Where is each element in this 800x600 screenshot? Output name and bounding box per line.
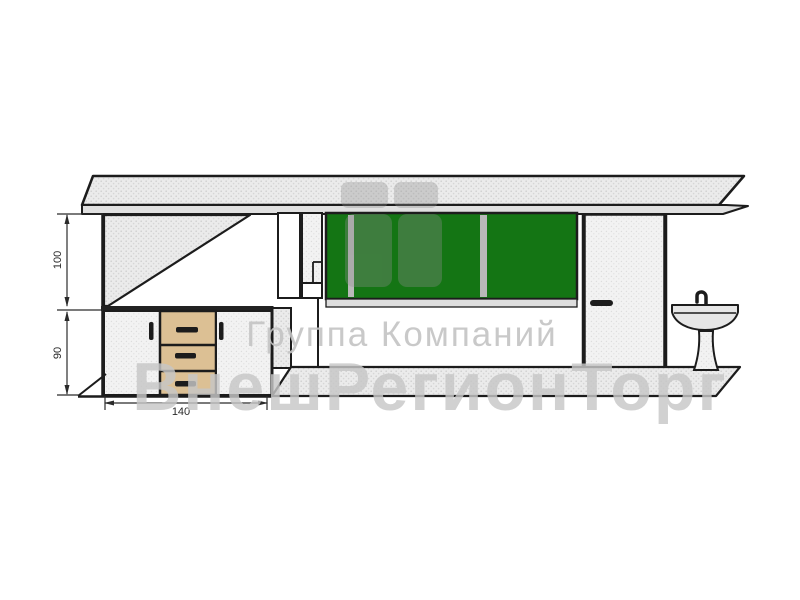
arrow-up-90 bbox=[65, 311, 70, 321]
arrow-down-90 bbox=[65, 385, 70, 395]
watermark-logo-block-top-left bbox=[341, 182, 388, 208]
arrow-up-100 bbox=[65, 214, 70, 224]
watermark-logo-block-top-right bbox=[394, 182, 438, 208]
watermark-brand-text: ВнешРегионТорг bbox=[132, 349, 728, 425]
cutaway-wall-section bbox=[104, 215, 250, 306]
sash-bottom-box bbox=[302, 283, 322, 298]
dimension-label-90: 90 bbox=[52, 347, 64, 359]
cabinet-left-door-handle bbox=[149, 322, 154, 340]
kiosk-elevation-screenshot: 100 90 140 Группа Компаний ВнешРегионТор… bbox=[0, 0, 800, 600]
window-sash-panel-inner bbox=[302, 213, 322, 283]
elevation-drawing: 100 90 140 Группа Компаний ВнешРегионТор… bbox=[0, 0, 800, 600]
sink-basin bbox=[672, 305, 738, 330]
window-sill bbox=[326, 299, 577, 307]
window-sash-panel-outer bbox=[278, 213, 300, 298]
door-handle bbox=[590, 300, 613, 306]
watermark-logo-block-bottom-right bbox=[398, 214, 442, 287]
window-mullion-2 bbox=[480, 215, 487, 297]
arrow-down-100 bbox=[65, 297, 70, 307]
watermark-logo-block-bottom-left bbox=[345, 214, 392, 287]
door-panel bbox=[585, 215, 664, 368]
dimension-label-100: 100 bbox=[52, 251, 64, 269]
drawer-handle-1 bbox=[176, 327, 198, 333]
cabinet-right-door-handle bbox=[219, 322, 224, 340]
